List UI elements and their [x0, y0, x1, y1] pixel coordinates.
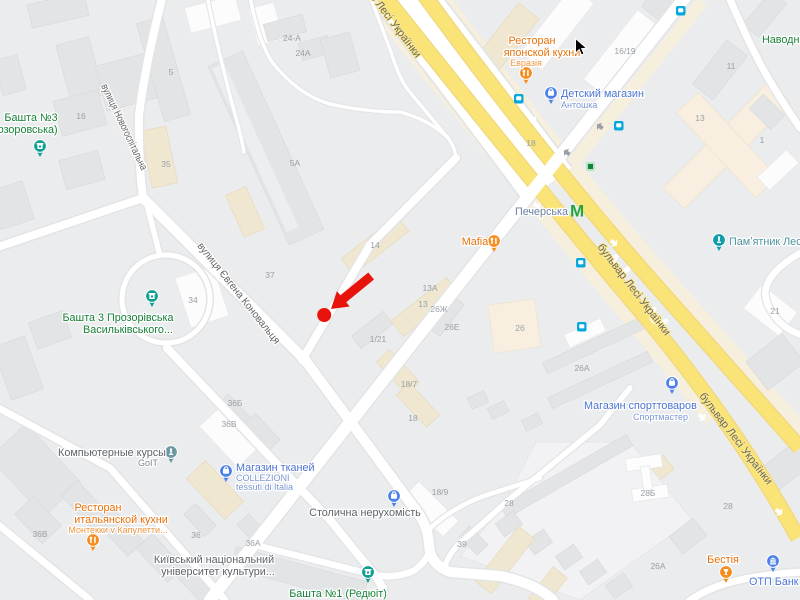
svg-text:16/19: 16/19	[614, 46, 636, 56]
svg-text:21: 21	[770, 306, 780, 316]
svg-text:13: 13	[418, 299, 428, 309]
svg-text:36: 36	[191, 530, 201, 540]
svg-text:28: 28	[504, 498, 514, 508]
svg-text:Київський національний: Київський національний	[154, 554, 274, 566]
svg-text:34: 34	[188, 295, 198, 305]
svg-text:Бестія: Бестія	[707, 554, 739, 566]
svg-text:26А: 26А	[650, 561, 665, 571]
svg-text:36А: 36А	[245, 538, 260, 548]
svg-text:5: 5	[169, 67, 174, 77]
svg-text:Детский магазин: Детский магазин	[561, 88, 644, 100]
svg-text:GoIT: GoIT	[138, 458, 159, 468]
svg-text:5А: 5А	[290, 158, 301, 168]
svg-text:(Прозоровська): (Прозоровська)	[0, 124, 58, 136]
svg-text:18/9: 18/9	[432, 487, 449, 497]
svg-text:24-А: 24-А	[283, 33, 301, 43]
svg-text:Наводницьк: Наводницьк	[762, 34, 800, 46]
svg-text:Антошка: Антошка	[561, 100, 597, 110]
svg-text:14: 14	[370, 240, 380, 250]
svg-text:університет культури...: університет культури...	[161, 566, 275, 578]
svg-text:28: 28	[723, 501, 733, 511]
svg-text:Васильківського...: Васильківського...	[83, 324, 173, 336]
svg-text:Памʼятник Лесі Ук: Памʼятник Лесі Ук	[729, 236, 800, 248]
svg-text:Печерська: Печерська	[515, 206, 568, 218]
svg-text:28Б: 28Б	[640, 488, 655, 498]
svg-text:Ресторан: Ресторан	[75, 502, 122, 514]
svg-text:М: М	[570, 202, 584, 221]
svg-text:26: 26	[515, 323, 525, 333]
svg-text:24А: 24А	[295, 48, 310, 58]
svg-text:18/7: 18/7	[401, 379, 418, 389]
svg-text:18: 18	[408, 413, 418, 423]
svg-text:Башта №1 (Редюіт): Башта №1 (Редюіт)	[289, 588, 387, 600]
svg-text:13: 13	[695, 113, 705, 123]
svg-text:Башта №3: Башта №3	[4, 112, 57, 124]
svg-text:Mafia: Mafia	[462, 236, 488, 248]
svg-text:36В: 36В	[32, 529, 47, 539]
svg-text:Столична нерухомість: Столична нерухомість	[309, 507, 421, 519]
svg-text:ОТП Банк: ОТП Банк	[749, 576, 799, 588]
svg-text:18: 18	[526, 138, 536, 148]
svg-text:39: 39	[457, 539, 467, 549]
svg-text:Евразія: Евразія	[510, 58, 542, 68]
svg-text:26А: 26А	[574, 363, 589, 373]
svg-text:26Е: 26Е	[444, 322, 459, 332]
svg-text:13А: 13А	[422, 283, 437, 293]
svg-text:Магазин спорттоваров: Магазин спорттоваров	[584, 400, 697, 412]
svg-text:Монтекки v Капулетти...: Монтекки v Капулетти...	[68, 525, 167, 535]
svg-text:Башта 3 Прозорівська: Башта 3 Прозорівська	[62, 312, 173, 324]
svg-text:16: 16	[76, 111, 86, 121]
svg-text:Ресторан: Ресторан	[509, 35, 556, 47]
svg-text:35: 35	[161, 159, 171, 169]
svg-text:36Б: 36Б	[227, 398, 242, 408]
svg-text:36В: 36В	[221, 419, 236, 429]
svg-text:1: 1	[760, 135, 765, 145]
svg-text:1/21: 1/21	[370, 334, 387, 344]
svg-text:tessuti di Italia: tessuti di Italia	[236, 482, 293, 492]
svg-text:26Ж: 26Ж	[430, 304, 447, 314]
svg-text:37: 37	[265, 270, 275, 280]
svg-text:Спортмастер: Спортмастер	[633, 412, 688, 422]
svg-text:11: 11	[727, 61, 736, 71]
